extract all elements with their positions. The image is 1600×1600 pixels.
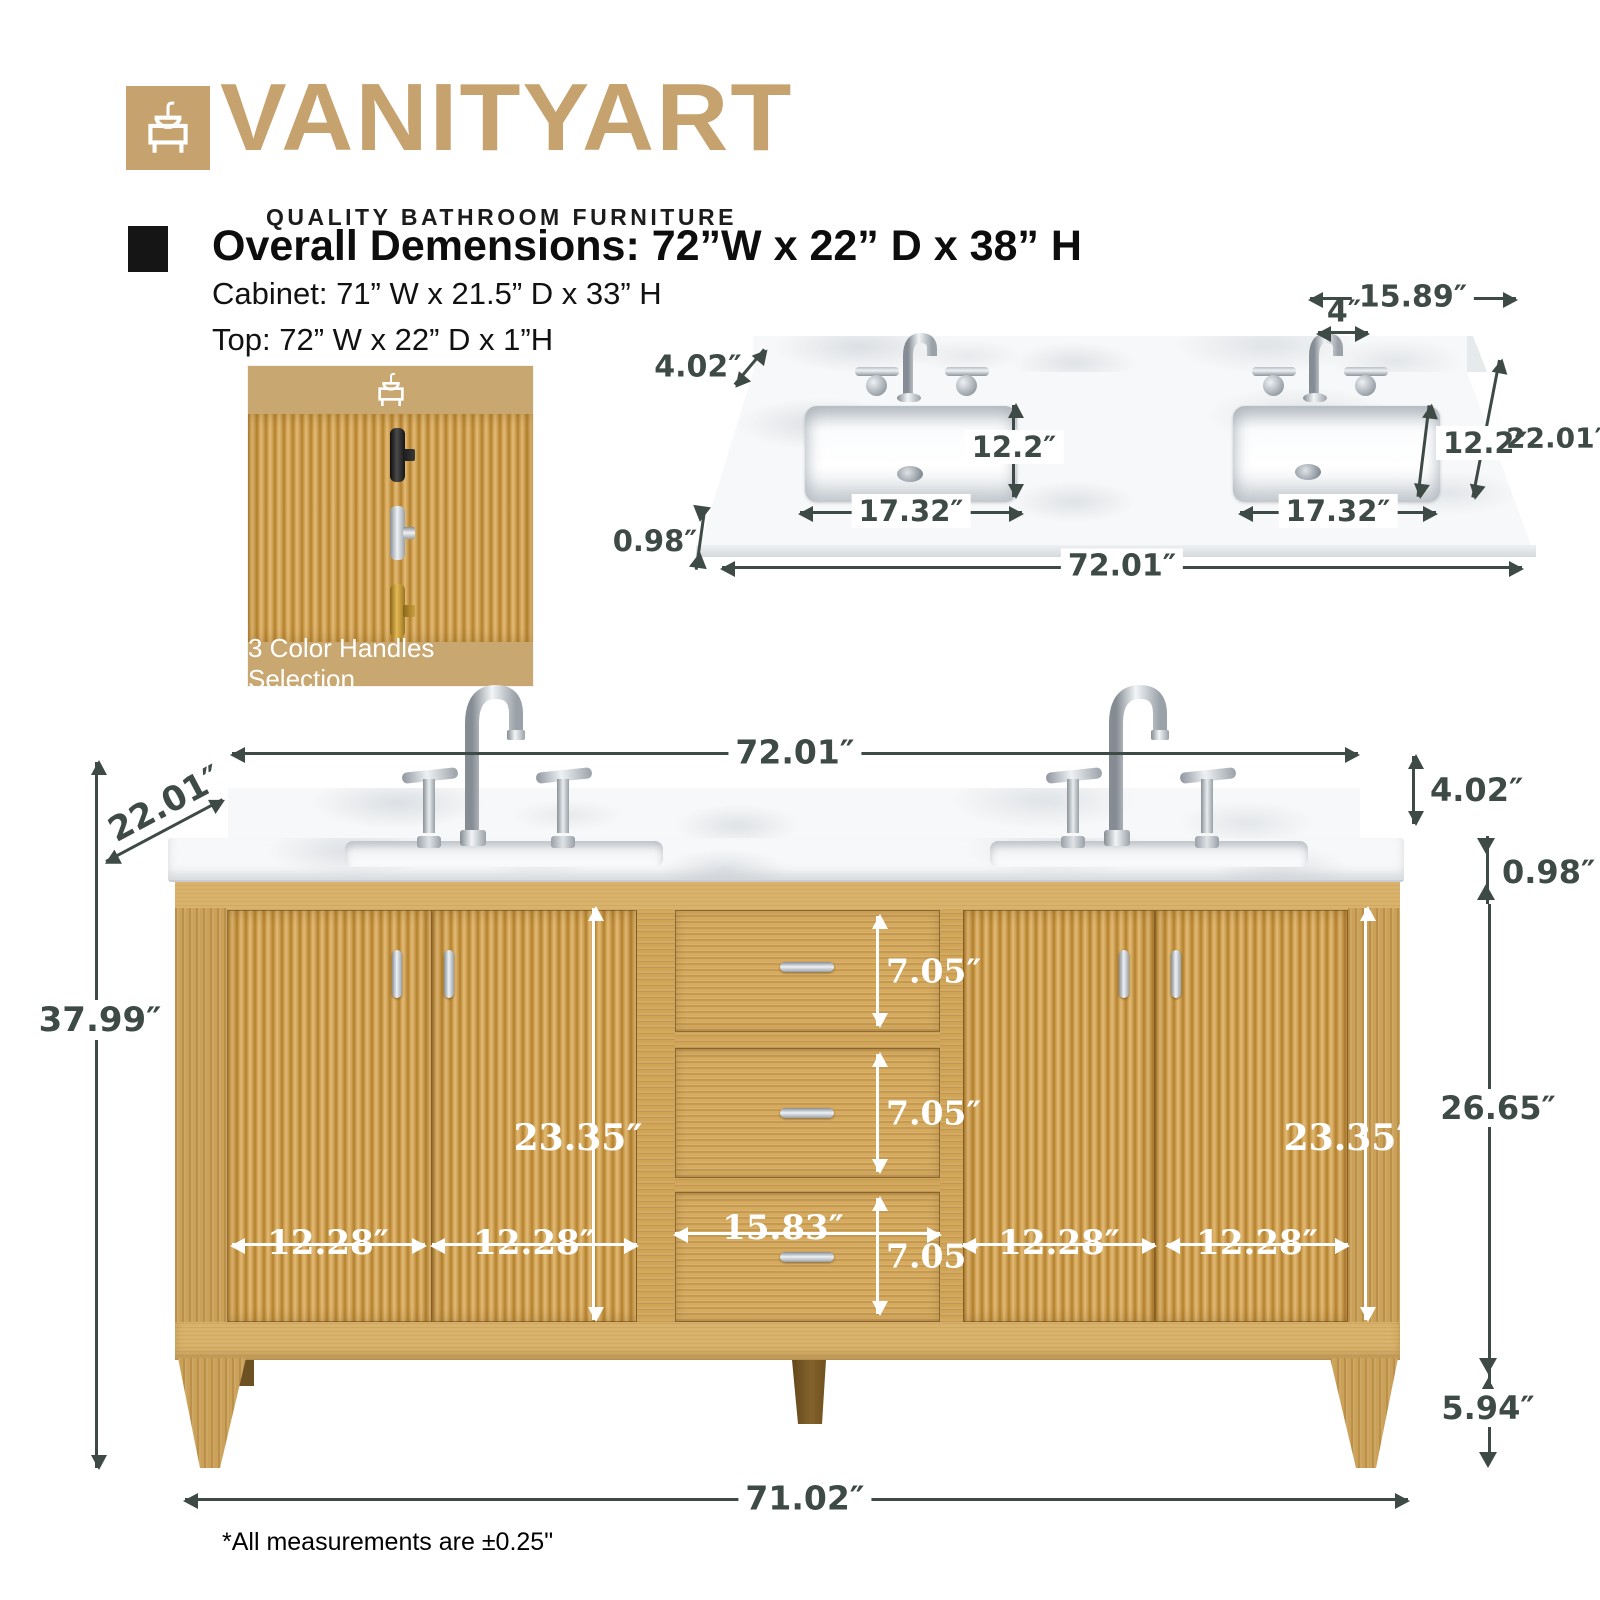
dim-label-door-width-4: 12.28″ <box>1196 1223 1318 1263</box>
cabinet-body <box>175 880 1400 1360</box>
door-handle-right-1 <box>1119 950 1129 998</box>
dim-arrow-drawer-height-3 <box>876 1198 879 1314</box>
swatch-wood-panel <box>248 414 533 642</box>
swatch-header-band <box>248 366 533 414</box>
dim-label-door-height-left: 23.35″ <box>514 1117 643 1159</box>
drawer-handle-3 <box>780 1252 834 1262</box>
front-faucet-spout-right <box>1092 672 1184 847</box>
dim-arrow-drawer-height-1 <box>876 916 879 1026</box>
dim-label-thickness-top: 0.98″ <box>613 524 698 558</box>
dim-label-drawer-height-1: 7.05″ <box>886 952 981 991</box>
faucet-handle-right-b <box>1344 367 1388 397</box>
dim-label-span-right: 15.89″ <box>1352 280 1474 315</box>
countertop-slab-top <box>698 372 1533 545</box>
dim-label-sink-width-left: 17.32″ <box>852 494 971 528</box>
dim-tri-counter-thickness-b <box>1477 884 1495 900</box>
cabinet-dimensions-line: Cabinet: 71” W x 21.5” D x 33” H <box>212 276 662 312</box>
dim-label-door-width-3: 12.28″ <box>998 1223 1120 1263</box>
drawer-handle-1 <box>780 962 834 972</box>
front-faucet-handle-left-b <box>536 768 592 848</box>
door-handle-left-2 <box>444 950 454 998</box>
faucet-handle-left-a <box>855 367 899 397</box>
dim-label-leg-height: 5.94″ <box>1434 1389 1541 1427</box>
handle-option-gold <box>386 584 416 638</box>
drain-right <box>1295 464 1321 480</box>
cabinet-left-stile <box>175 908 227 1322</box>
dim-label-door-width-2: 12.28″ <box>473 1223 595 1263</box>
brand-logo-icon <box>126 86 210 170</box>
cabinet-center-stile-left <box>637 910 675 1322</box>
dim-tri-leg-height-a <box>1479 1358 1497 1374</box>
dim-tri-leg-height-c <box>1479 1452 1497 1468</box>
title-bullet <box>128 226 168 272</box>
sink-basin-right <box>1233 406 1440 502</box>
drawer-rail-1 <box>675 1032 940 1048</box>
top-dimensions-line: Top: 72” W x 22” D x 1”H <box>212 322 553 358</box>
front-faucet-handle-left-a <box>402 768 458 848</box>
front-faucet-spout-left <box>448 672 540 847</box>
dim-label-overall-width-front: 72.01″ <box>728 733 861 772</box>
cabinet-leg-right <box>1330 1358 1400 1468</box>
dim-arrow-overall-height <box>95 762 98 1468</box>
vanity-icon <box>371 370 411 410</box>
countertop-backsplash-endcap <box>1467 336 1487 372</box>
dim-label-backsplash-height-top: 4.02″ <box>654 350 741 385</box>
dim-label-sink-width-right: 17.32″ <box>1279 494 1398 528</box>
handle-option-chrome <box>386 506 416 560</box>
faucet-handle-right-a <box>1252 367 1296 397</box>
dim-label-sink-depth-left: 12.2″ <box>965 430 1064 464</box>
brand-wordmark: VANITYART <box>220 70 793 166</box>
vanity-dimension-sheet: VANITYART QUALITY BATHROOM FURNITURE Ove… <box>0 0 1600 1600</box>
dim-label-door-width-1: 12.28″ <box>267 1223 389 1263</box>
dim-arrow-drawer-height-2 <box>876 1054 879 1172</box>
dim-label-drawer-height-2: 7.05″ <box>886 1094 981 1133</box>
dim-label-counter-thickness: 0.98″ <box>1502 853 1595 891</box>
dim-tri-thickness-top-a <box>691 505 711 523</box>
drain-left <box>897 466 923 482</box>
dim-label-drawer-width: 15.83″ <box>722 1208 844 1248</box>
door-handle-right-2 <box>1171 950 1181 998</box>
cabinet-bottom-rail <box>175 1322 1400 1360</box>
dim-label-backsplash-height-front: 4.02″ <box>1430 771 1523 809</box>
cabinet-leg-left <box>176 1358 246 1468</box>
dim-label-depth-top: 22.01″ <box>1506 422 1600 455</box>
dim-label-overall-width-top: 72.01″ <box>1061 549 1183 584</box>
handle-option-black <box>386 428 416 482</box>
dim-label-door-height-right: 23.35″ <box>1284 1117 1413 1159</box>
dim-arrow-door-height-right <box>1364 908 1367 1320</box>
measurement-tolerance-note: *All measurements are ±0.25" <box>222 1528 553 1557</box>
dim-label-faucet-spacing: 4″ <box>1327 295 1361 330</box>
dim-tri-counter-thickness-a <box>1477 838 1495 854</box>
page-title: Overall Demensions: 72”W x 22” D x 38” H <box>212 222 1082 271</box>
faucet-spout-left <box>894 330 938 402</box>
dim-line-cabinet-side-height <box>1488 904 1491 1360</box>
cabinet-right-stile <box>1348 908 1400 1322</box>
dim-label-base-width: 71.02″ <box>738 1479 871 1518</box>
vanity-icon <box>137 97 199 159</box>
handle-swatch-card: 3 Color Handles Selection <box>248 366 533 686</box>
dim-label-overall-height: 37.99″ <box>32 1000 169 1040</box>
front-faucet-handle-right-b <box>1180 768 1236 848</box>
dim-label-drawer-height-3: 7.05″ <box>886 1237 981 1276</box>
drawer-handle-2 <box>780 1108 834 1118</box>
drawer-rail-2 <box>675 1178 940 1192</box>
front-faucet-handle-right-a <box>1046 768 1102 848</box>
door-handle-left-1 <box>392 950 402 998</box>
faucet-handle-left-b <box>945 367 989 397</box>
dim-arrow-faucet-spacing <box>1318 331 1368 334</box>
dim-arrow-backsplash-height-front <box>1412 756 1415 824</box>
dim-label-cabinet-side-height: 26.65″ <box>1433 1089 1563 1127</box>
cabinet-leg-center <box>790 1360 828 1424</box>
cabinet-top-rail <box>175 880 1400 910</box>
